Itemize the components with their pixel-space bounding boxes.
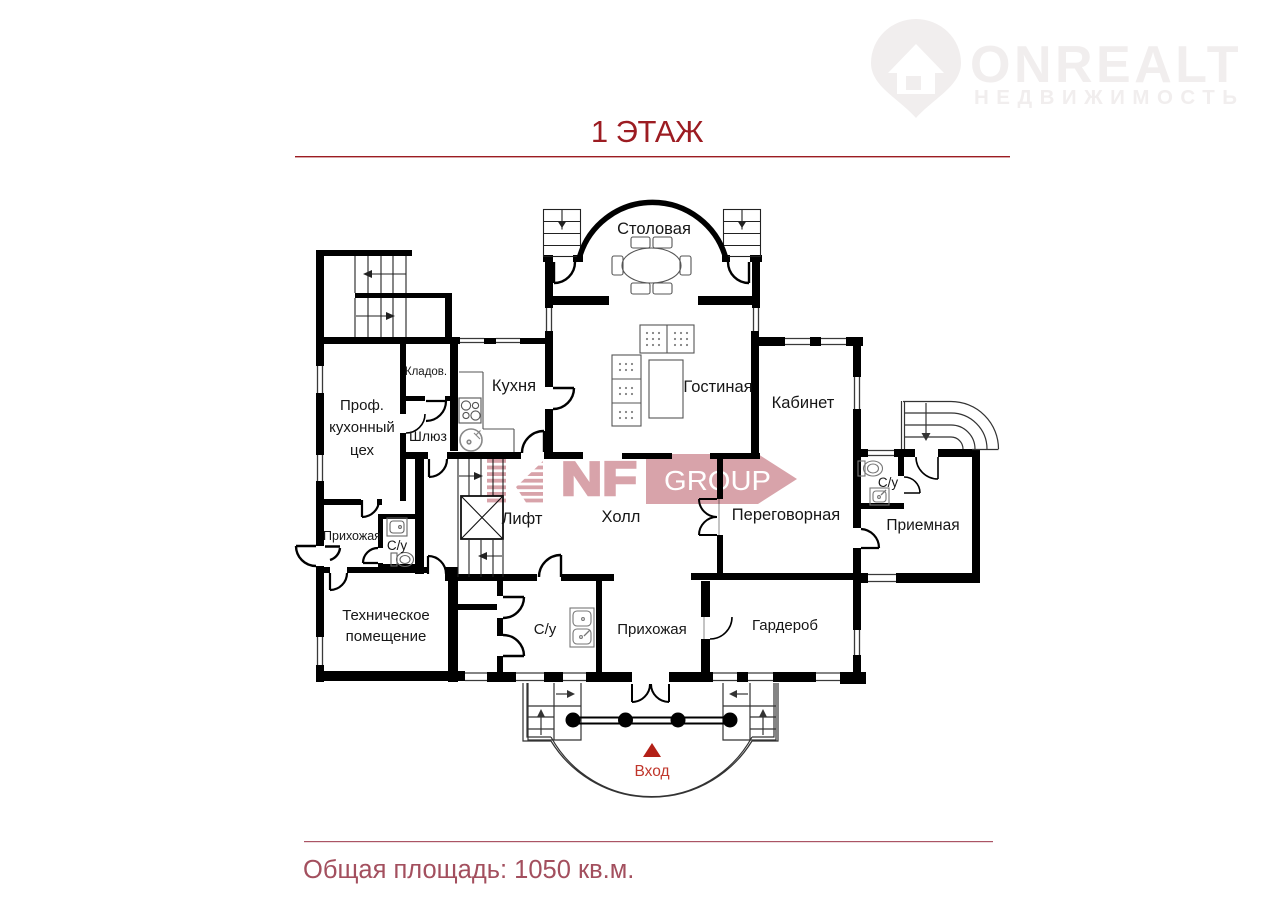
svg-text:GROUP: GROUP bbox=[664, 465, 771, 496]
svg-text:NF: NF bbox=[561, 452, 637, 505]
